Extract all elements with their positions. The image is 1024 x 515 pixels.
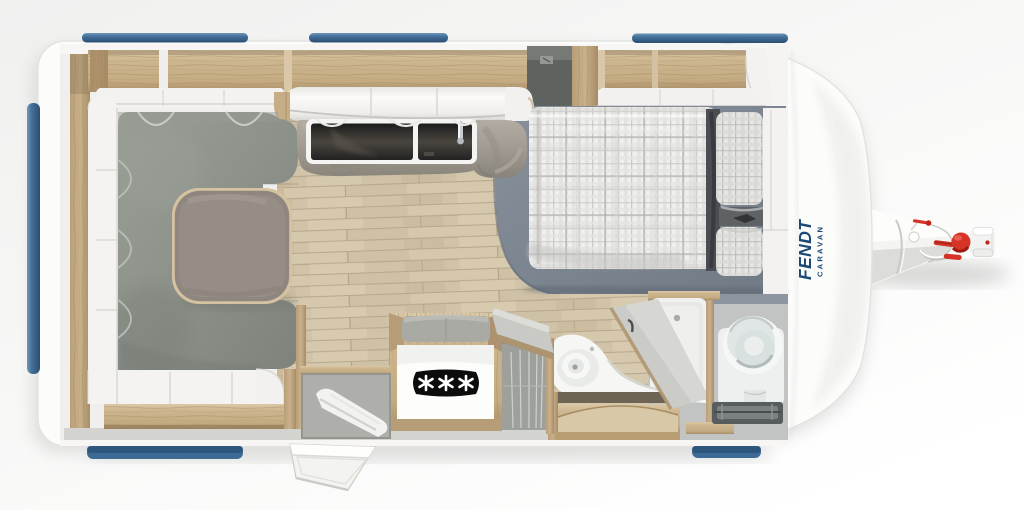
svg-text:CARAVAN: CARAVAN [816,225,825,277]
svg-text:FENDT: FENDT [795,219,815,280]
